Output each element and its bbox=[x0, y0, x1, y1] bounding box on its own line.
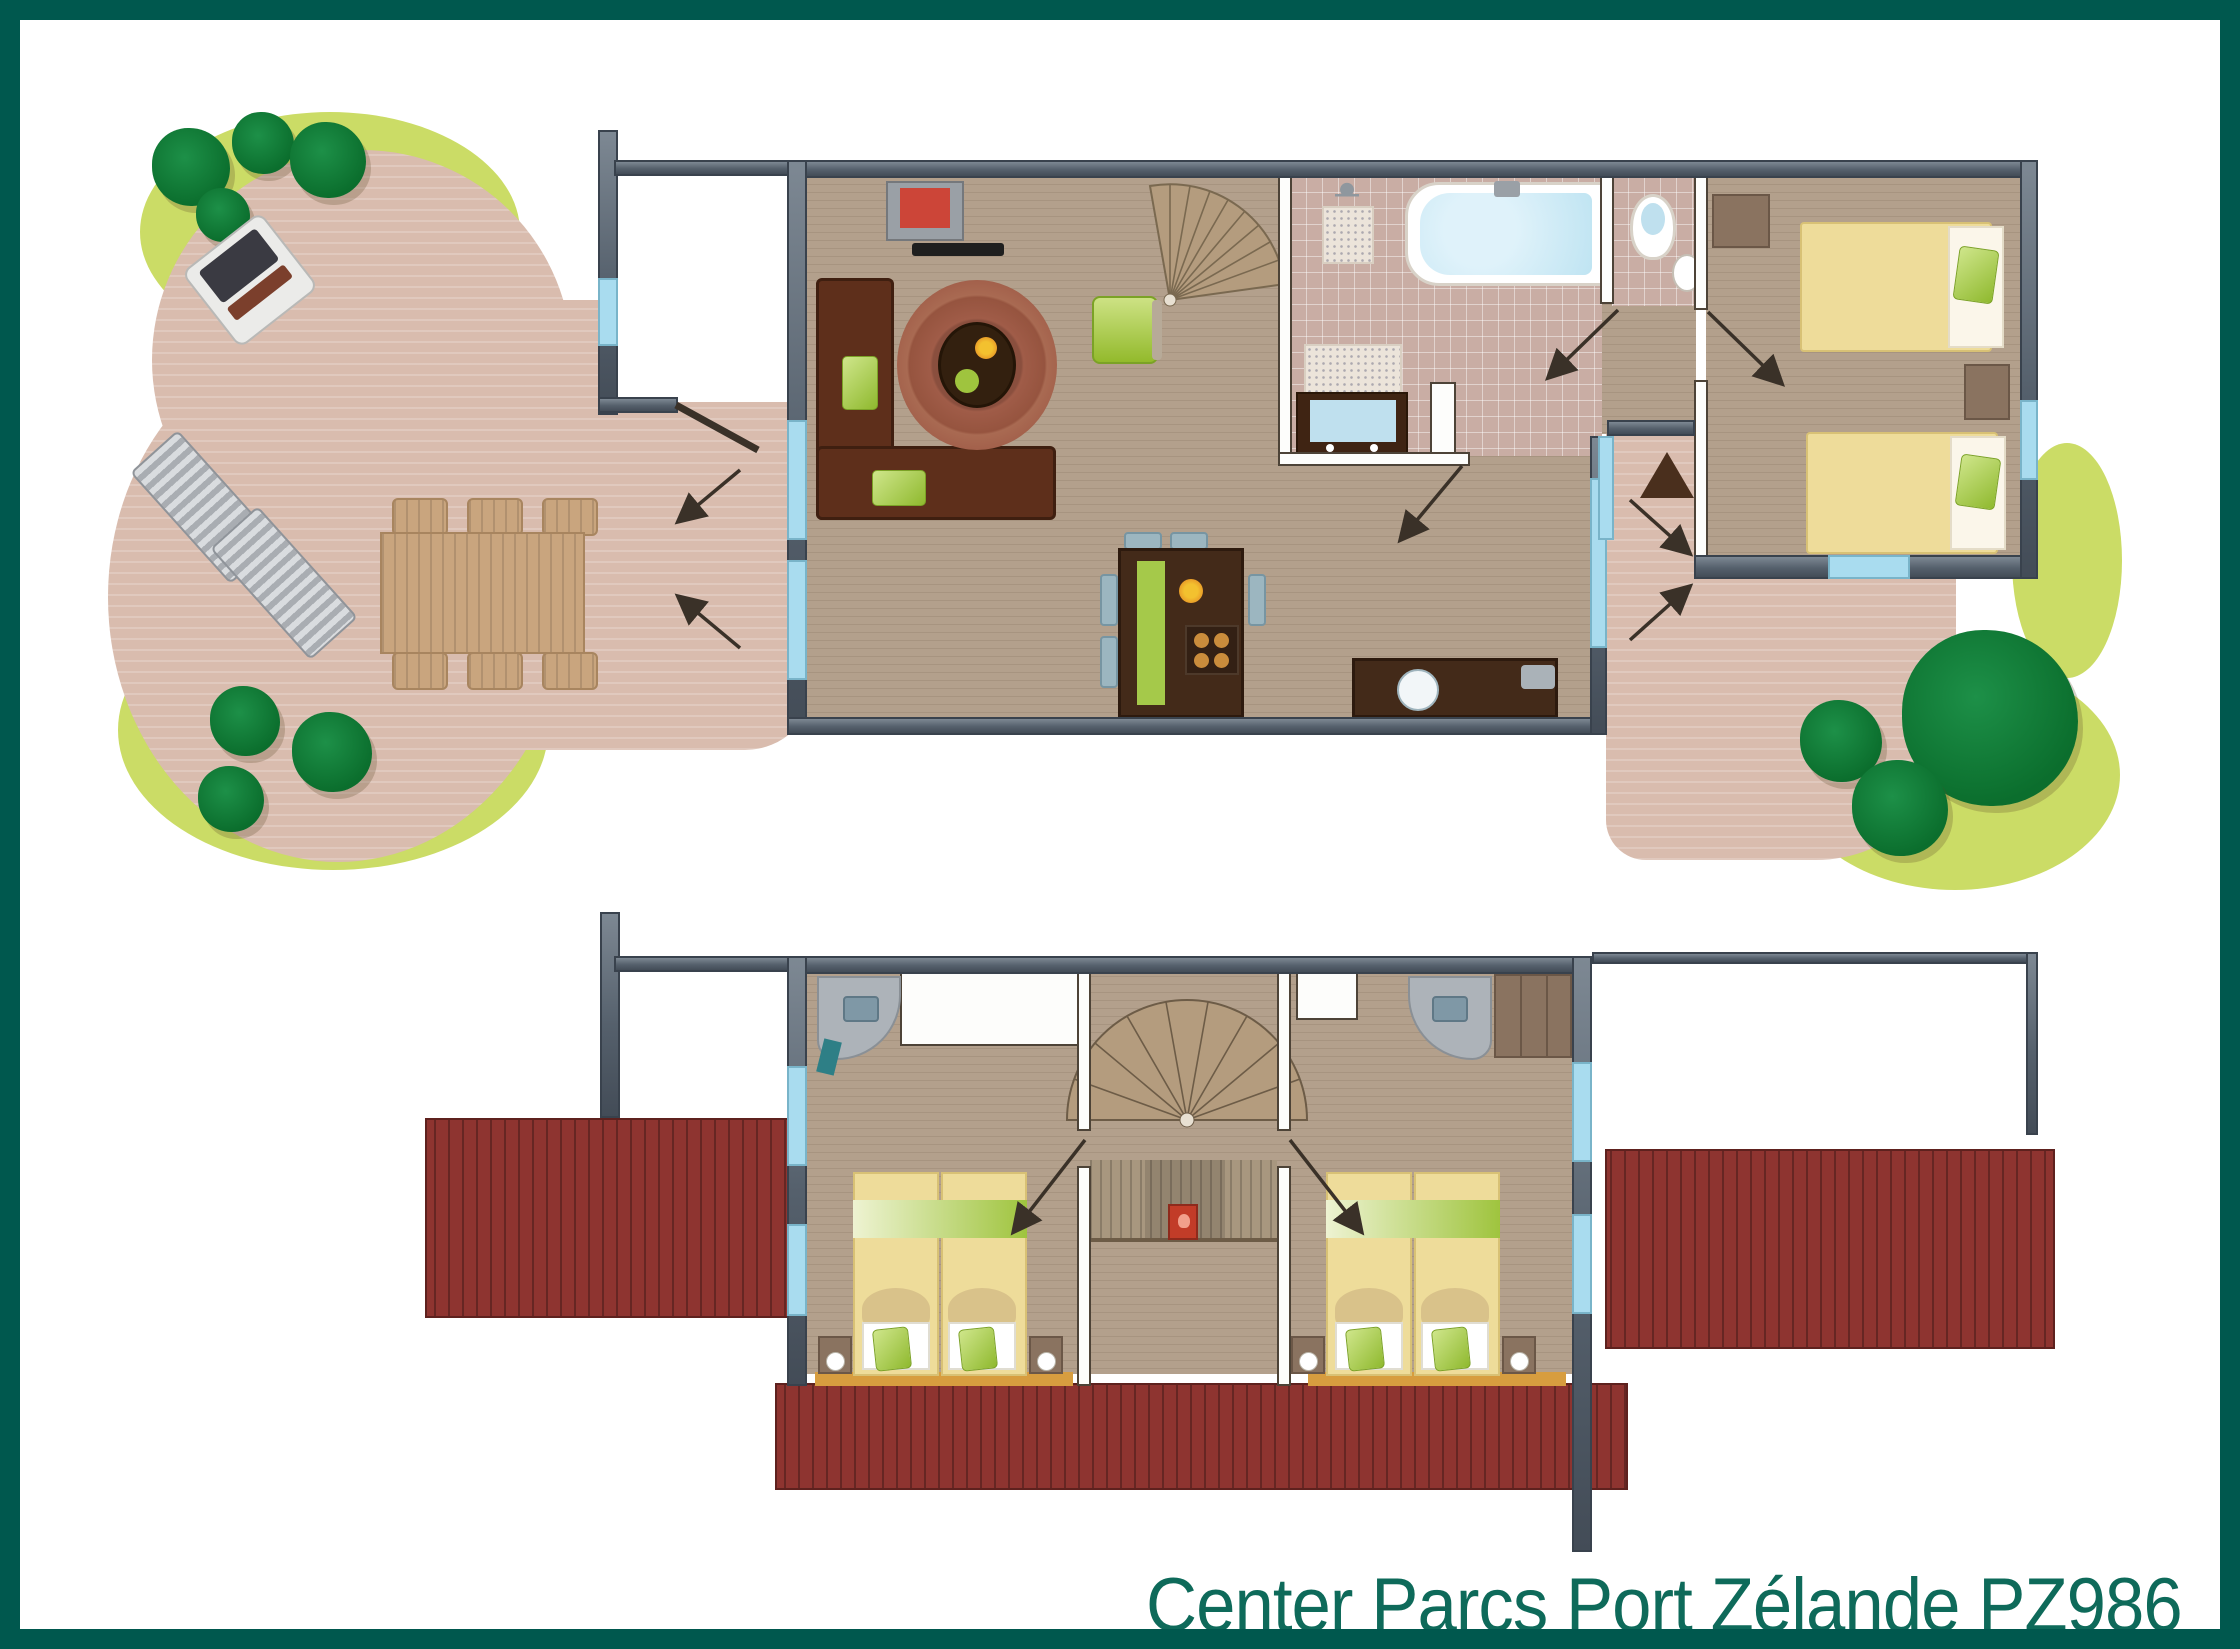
bed-cushion bbox=[1345, 1326, 1385, 1372]
lamp-icon bbox=[826, 1352, 845, 1371]
bottom-deck bbox=[775, 1383, 1628, 1490]
lamp-icon bbox=[1299, 1352, 1318, 1371]
closet bbox=[900, 966, 1080, 1046]
right-wall-window bbox=[1572, 1062, 1592, 1162]
bush bbox=[290, 122, 366, 198]
garden-fence bbox=[614, 956, 794, 972]
house-top-wall bbox=[787, 956, 1592, 974]
bush bbox=[198, 766, 264, 832]
bush bbox=[292, 712, 372, 792]
first-floor-plan bbox=[0, 900, 2240, 1560]
spiral-staircase-icon bbox=[1062, 972, 1312, 1124]
sink-icon bbox=[1432, 996, 1468, 1022]
bed-cushion bbox=[958, 1326, 998, 1372]
left-wall-window bbox=[787, 1066, 807, 1166]
right-wall-window bbox=[1572, 1214, 1592, 1314]
left-deck bbox=[425, 1118, 790, 1318]
corridor-wall bbox=[1077, 966, 1091, 1131]
balcony-railing bbox=[2026, 952, 2038, 1135]
outdoor-dining-table bbox=[380, 532, 585, 654]
bush bbox=[210, 686, 280, 756]
outdoor-chair bbox=[392, 652, 448, 690]
outdoor-chair bbox=[392, 498, 448, 536]
sink-icon bbox=[843, 996, 879, 1022]
closet bbox=[1296, 966, 1358, 1020]
bush bbox=[232, 112, 294, 174]
ground-floor-plan bbox=[0, 0, 2240, 900]
door-swing-icon bbox=[960, 1120, 1420, 1260]
cabinet bbox=[1494, 974, 1572, 1058]
lamp-icon bbox=[1510, 1352, 1529, 1371]
corridor-wall bbox=[1277, 966, 1291, 1131]
fence-post bbox=[600, 912, 620, 1118]
bed-cushion bbox=[1431, 1326, 1471, 1372]
bed-cushion bbox=[872, 1326, 912, 1372]
caption: Center Parcs Port Zélande PZ986 bbox=[1146, 1562, 2182, 1649]
lamp-icon bbox=[1037, 1352, 1056, 1371]
door-swing-icon bbox=[560, 160, 2080, 860]
house-left-wall bbox=[787, 956, 807, 1386]
left-wall-window bbox=[787, 1224, 807, 1316]
outdoor-chair bbox=[467, 652, 523, 690]
balcony-railing bbox=[1592, 952, 2038, 964]
outdoor-chair bbox=[467, 498, 523, 536]
right-deck bbox=[1605, 1149, 2055, 1349]
